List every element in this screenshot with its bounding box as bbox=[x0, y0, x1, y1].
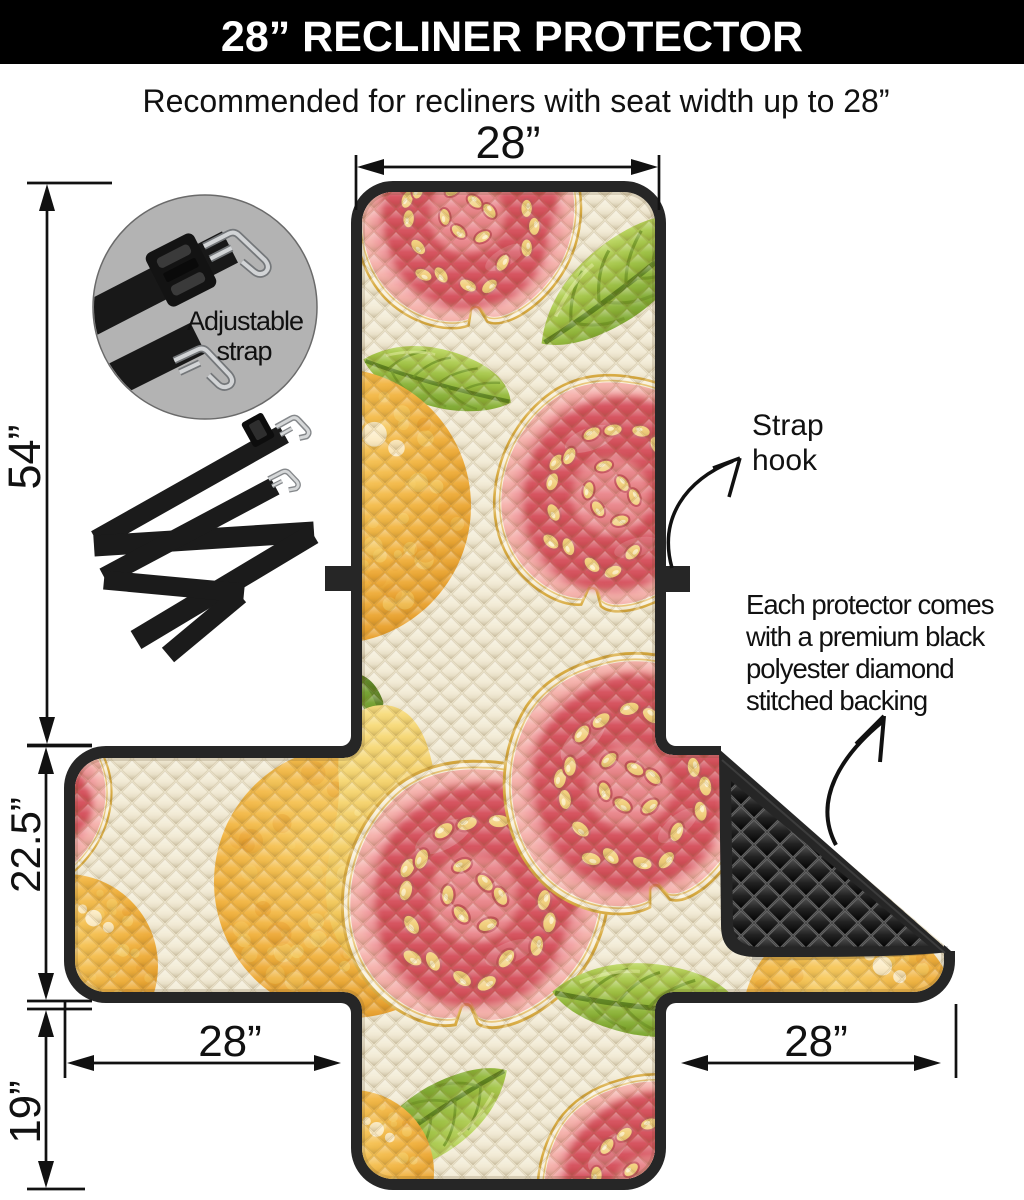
svg-text:19”: 19” bbox=[1, 1080, 50, 1144]
svg-text:Adjustable: Adjustable bbox=[187, 306, 303, 336]
svg-text:22.5”: 22.5” bbox=[2, 797, 49, 893]
svg-text:28”: 28” bbox=[198, 1017, 262, 1066]
svg-text:polyester diamond: polyester diamond bbox=[746, 653, 954, 684]
svg-text:with a premium black: with a premium black bbox=[745, 621, 986, 652]
svg-text:28”: 28” bbox=[475, 117, 540, 168]
svg-text:28” RECLINER PROTECTOR: 28” RECLINER PROTECTOR bbox=[221, 13, 803, 61]
svg-text:54”: 54” bbox=[0, 424, 50, 489]
svg-text:Each protector comes: Each protector comes bbox=[746, 589, 994, 620]
svg-text:stitched backing: stitched backing bbox=[746, 685, 927, 716]
svg-text:Recommended for recliners with: Recommended for recliners with seat widt… bbox=[142, 83, 889, 119]
svg-text:28”: 28” bbox=[784, 1017, 848, 1066]
svg-text:strap: strap bbox=[216, 336, 271, 366]
svg-text:Strap: Strap bbox=[752, 409, 824, 442]
svg-text:hook: hook bbox=[752, 444, 818, 477]
